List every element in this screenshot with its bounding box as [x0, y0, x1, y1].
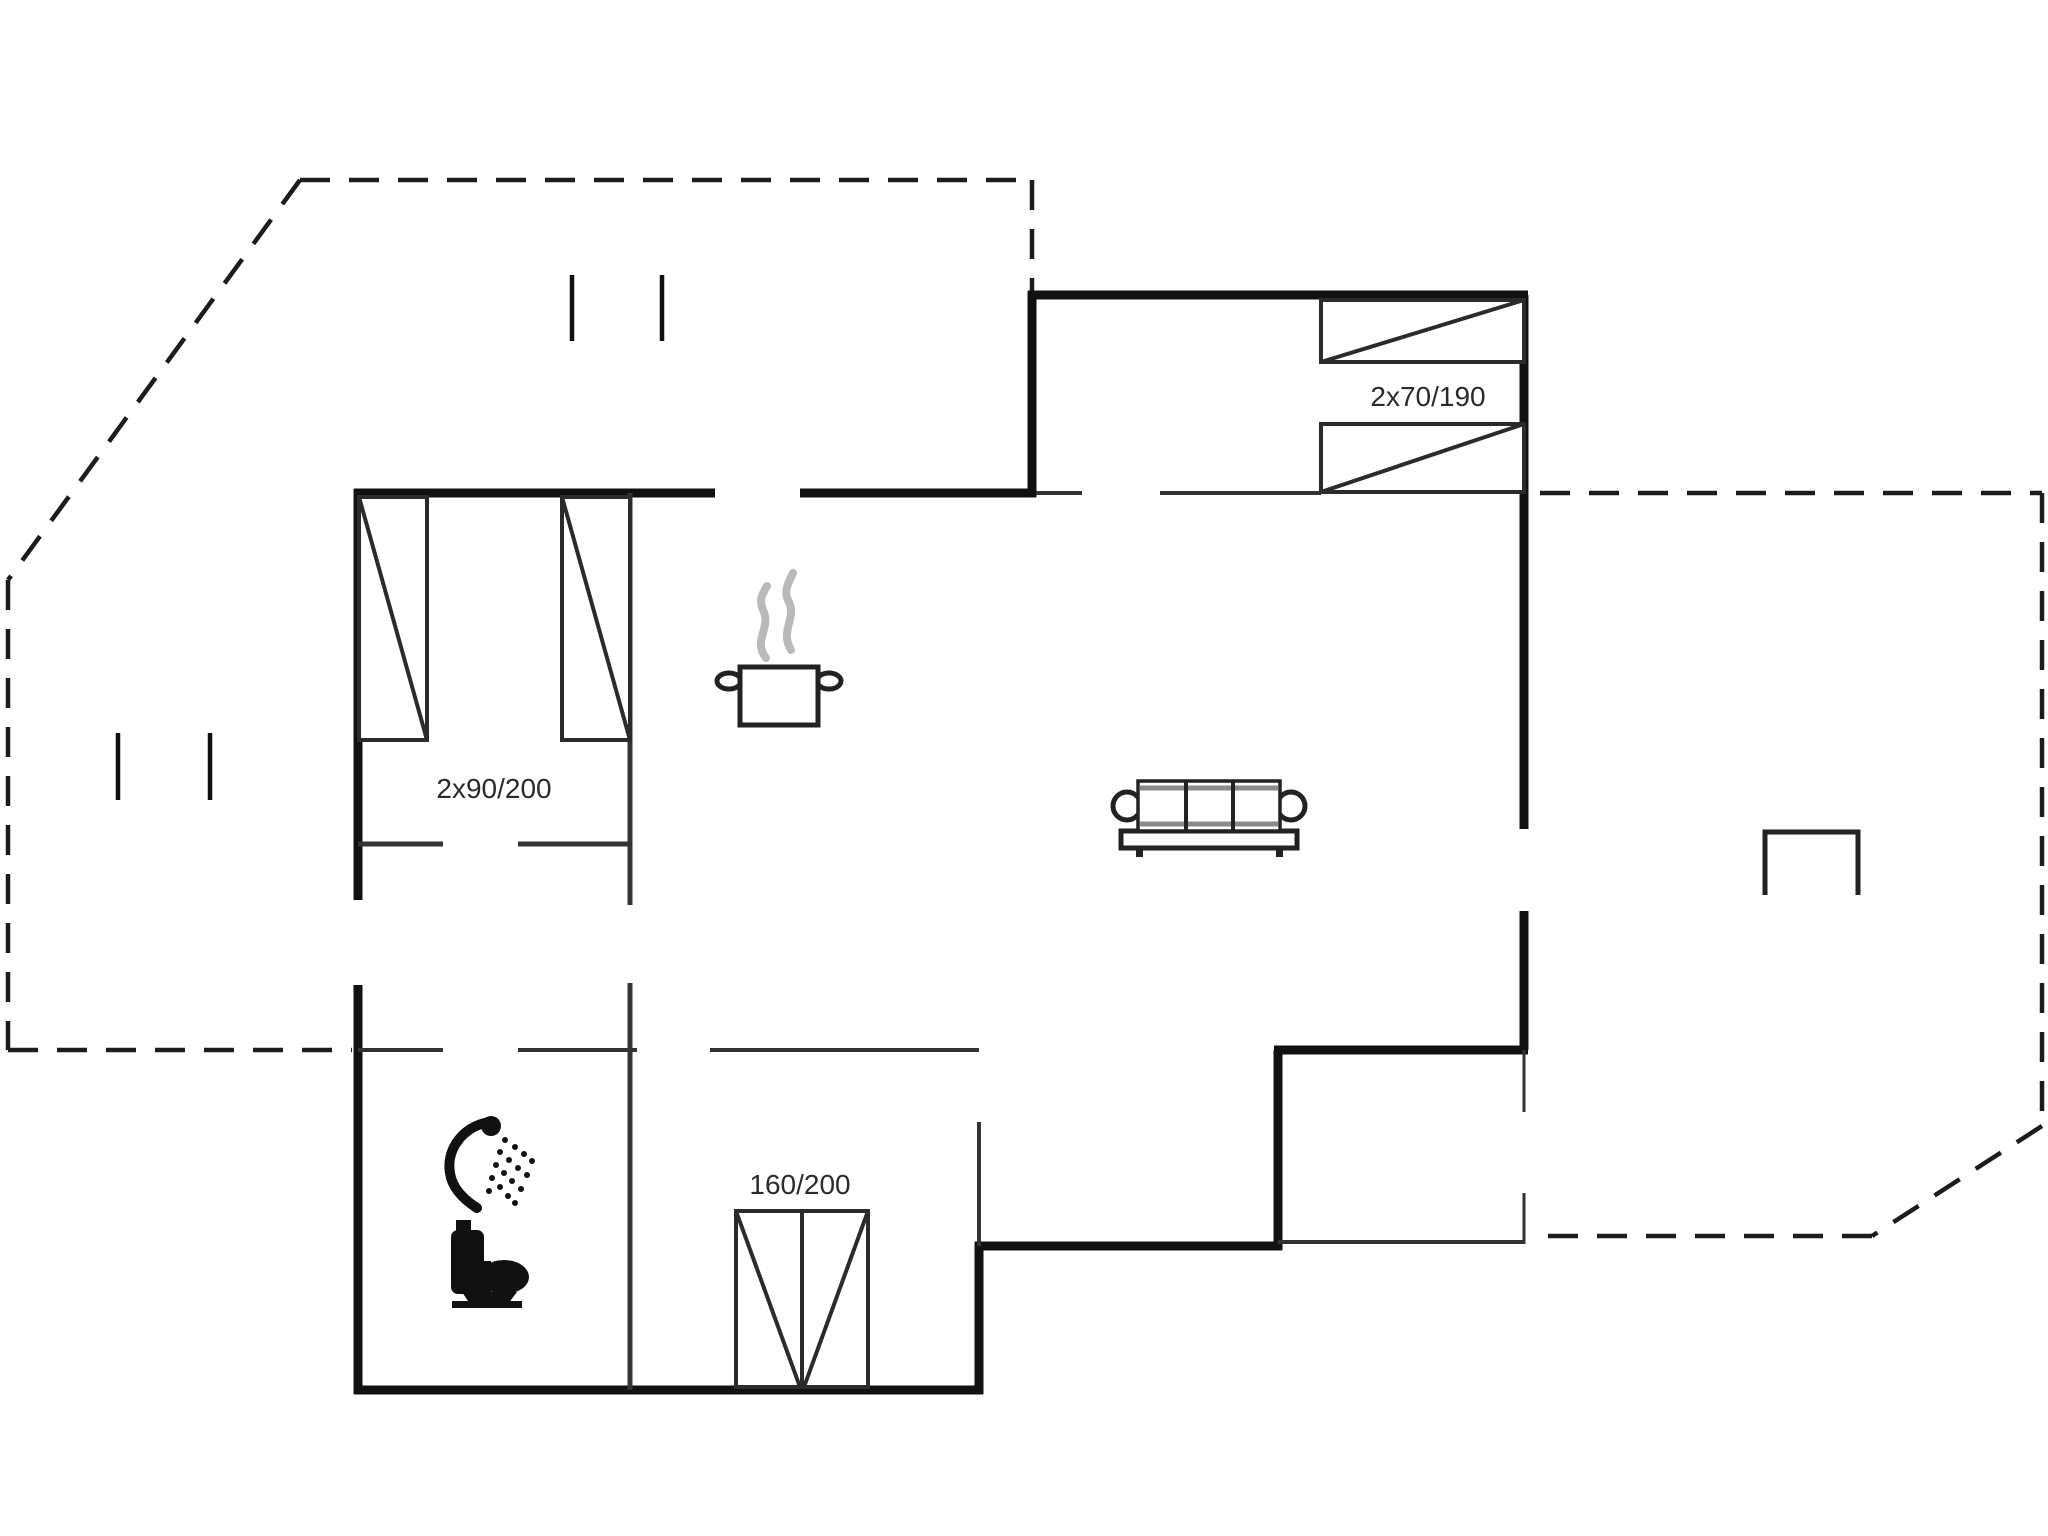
pot-handle [817, 673, 841, 689]
sofa-icon [1113, 781, 1305, 857]
floor-plan-canvas: 2x70/190 2x90/200 160/200 [0, 0, 2048, 1536]
sofa-foot [1276, 848, 1283, 857]
twin-beds-label: 2x90/200 [436, 773, 551, 804]
twin-beds [359, 497, 630, 740]
sofa-base [1121, 831, 1297, 848]
shower-head [481, 1116, 501, 1136]
shower-spray [486, 1137, 535, 1206]
pot-handle [717, 673, 741, 689]
toilet-base [452, 1301, 522, 1308]
double-bed-label: 160/200 [749, 1169, 850, 1200]
floor-plan-drawing: 2x70/190 2x90/200 160/200 [0, 0, 2048, 1536]
sofa-foot [1136, 848, 1143, 857]
bunk-beds-label: 2x70/190 [1370, 381, 1485, 412]
cooking-pot-icon [717, 573, 841, 725]
steam-icon [761, 586, 767, 658]
shower-icon [449, 1116, 535, 1208]
toilet-bowl [479, 1260, 529, 1294]
boundary-bottom-right-diagonal [1872, 1126, 2042, 1236]
pot-body [740, 667, 818, 725]
toilet-icon [451, 1220, 529, 1308]
terrace-table-icon [1765, 832, 1858, 895]
double-bed [736, 1211, 868, 1387]
terrace-boundary [8, 180, 2042, 1236]
interior-walls [358, 493, 1524, 1390]
shower-arm [449, 1122, 489, 1208]
steam-icon [786, 573, 793, 650]
boundary-top-left-diagonal [8, 180, 300, 580]
toilet-tank [456, 1220, 471, 1231]
